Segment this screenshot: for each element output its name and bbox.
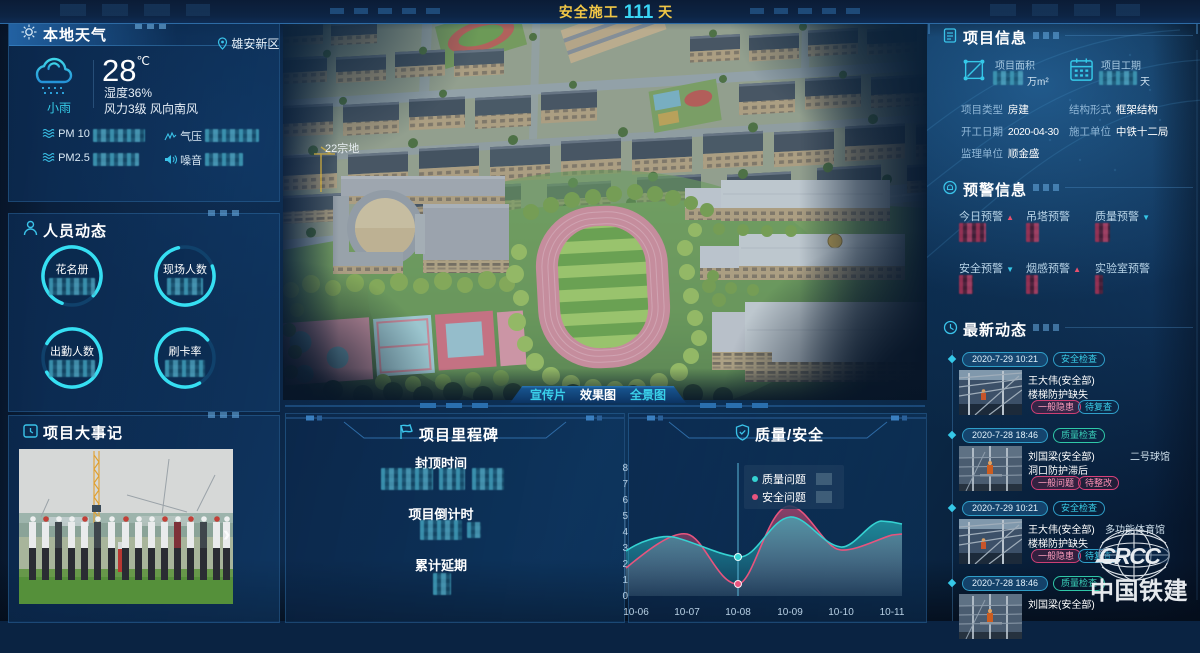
svg-text:10-08: 10-08 xyxy=(725,607,751,618)
svg-text:10-09: 10-09 xyxy=(777,607,803,618)
svg-text:10-10: 10-10 xyxy=(828,607,854,618)
svg-text:10-06: 10-06 xyxy=(623,607,649,618)
svg-text:安全问题: 安全问题 xyxy=(762,490,806,504)
svg-text:CRCC: CRCC xyxy=(1099,543,1161,569)
svg-text:10-11: 10-11 xyxy=(880,607,905,618)
svg-text:中国铁建: 中国铁建 xyxy=(1090,578,1188,605)
svg-text:质量问题: 质量问题 xyxy=(762,473,806,486)
svg-text:10-07: 10-07 xyxy=(674,607,700,618)
svg-text:22宗地: 22宗地 xyxy=(325,141,359,155)
